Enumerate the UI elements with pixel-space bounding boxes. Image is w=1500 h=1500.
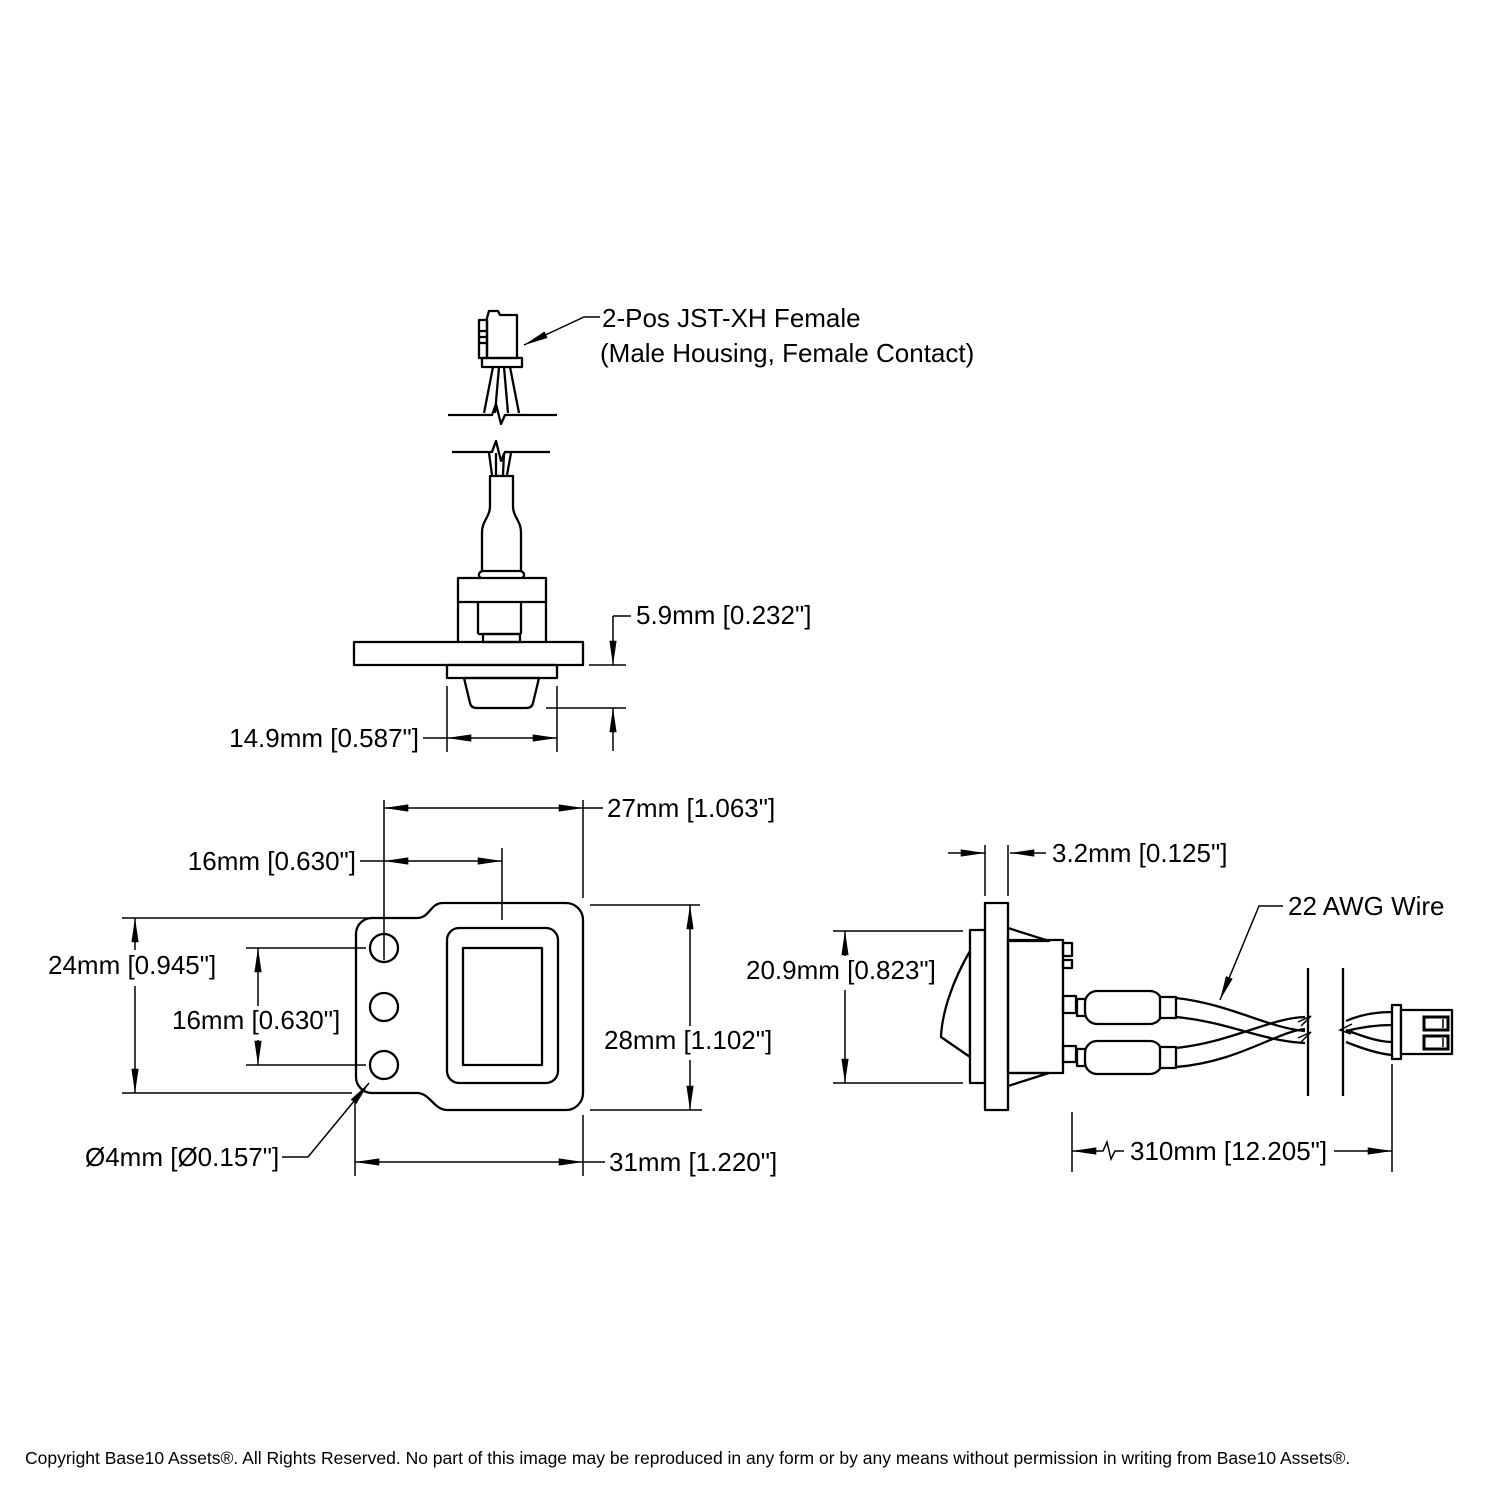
connector-callout-line2: (Male Housing, Female Contact)	[600, 338, 974, 368]
mount-panel	[985, 903, 1008, 1110]
dim-text-16v: 16mm [0.630"]	[172, 1005, 340, 1035]
dim-text-hole-dia: Ø4mm [Ø0.157"]	[85, 1142, 279, 1172]
body-nub-1	[1063, 943, 1072, 956]
dim-text-310: 310mm [12.205"]	[1130, 1136, 1327, 1166]
twisted-wires-right	[1340, 1012, 1392, 1055]
mount-hole-3	[370, 1051, 398, 1079]
rocker-profile	[941, 951, 970, 1057]
copyright-text: Copyright Base10 Assets®. All Rights Res…	[25, 1448, 1350, 1468]
jst-connector-side-icon	[1392, 1005, 1452, 1059]
dim-hole-to-edge: 27mm [1.063"]	[384, 793, 775, 960]
wire-gauge-callout: 22 AWG Wire	[1220, 891, 1445, 1000]
dim-text-protrusion: 5.9mm [0.232"]	[636, 600, 811, 630]
side-view: 3.2mm [0.125"] 20.9mm [0.823"] 22 AWG Wi…	[740, 838, 1452, 1172]
heat-shrink-bottom-wire	[1077, 1041, 1176, 1074]
terminal-1	[1063, 996, 1076, 1013]
body-nub-2	[1063, 960, 1072, 968]
top-view: 2-Pos JST-XH Female (Male Housing, Femal…	[229, 303, 974, 753]
front-view: 27mm [1.063"] 16mm [0.630"] 24mm [0.945"…	[42, 793, 782, 1177]
break-line-1	[448, 404, 557, 424]
terminal-2	[1063, 1046, 1076, 1062]
dim-text-3-2: 3.2mm [0.125"]	[1052, 838, 1227, 868]
dim-text-28: 28mm [1.102"]	[604, 1025, 772, 1055]
jst-connector-top-icon	[479, 311, 522, 367]
rocker-face	[463, 948, 542, 1065]
switch-flange	[970, 930, 985, 1083]
clip-bottom	[1008, 1073, 1049, 1086]
dim-rocker-protrusion: 5.9mm [0.232"]	[546, 600, 811, 751]
front-body-outline	[356, 903, 583, 1110]
heat-shrink-top-wire	[1077, 991, 1176, 1024]
dim-text-16h: 16mm [0.630"]	[188, 846, 356, 876]
wires-upper	[484, 367, 519, 413]
break-line-2	[452, 441, 550, 461]
dim-text-rocker-width: 14.9mm [0.587"]	[229, 723, 419, 753]
dim-rocker-width: 14.9mm [0.587"]	[229, 686, 557, 753]
dim-text-20-9: 20.9mm [0.823"]	[746, 955, 936, 985]
dim-text-24: 24mm [0.945"]	[48, 950, 216, 980]
twisted-wires-left	[1176, 998, 1311, 1067]
hole-diameter-callout: Ø4mm [Ø0.157"]	[85, 1083, 369, 1172]
mount-hole-2	[370, 993, 398, 1021]
technical-drawing: 2-Pos JST-XH Female (Male Housing, Femal…	[0, 0, 1500, 1500]
drawing-canvas: 2-Pos JST-XH Female (Male Housing, Femal…	[0, 0, 1500, 1500]
connector-callout-line1: 2-Pos JST-XH Female	[602, 303, 861, 333]
heat-shrink-boot	[482, 476, 521, 571]
dim-text-31: 31mm [1.220"]	[609, 1147, 777, 1177]
switch-body-side	[1008, 940, 1063, 1073]
dim-panel-thickness: 3.2mm [0.125"]	[948, 838, 1227, 896]
connector-callout-leader	[524, 317, 600, 345]
dim-text-27: 27mm [1.063"]	[607, 793, 775, 823]
dim-body-depth: 20.9mm [0.823"]	[740, 931, 963, 1083]
switch-body-top	[354, 578, 583, 708]
wire-gauge-label: 22 AWG Wire	[1288, 891, 1445, 921]
dim-hole-to-center: 16mm [0.630"]	[188, 846, 502, 920]
dim-body-height: 28mm [1.102"]	[590, 905, 782, 1110]
